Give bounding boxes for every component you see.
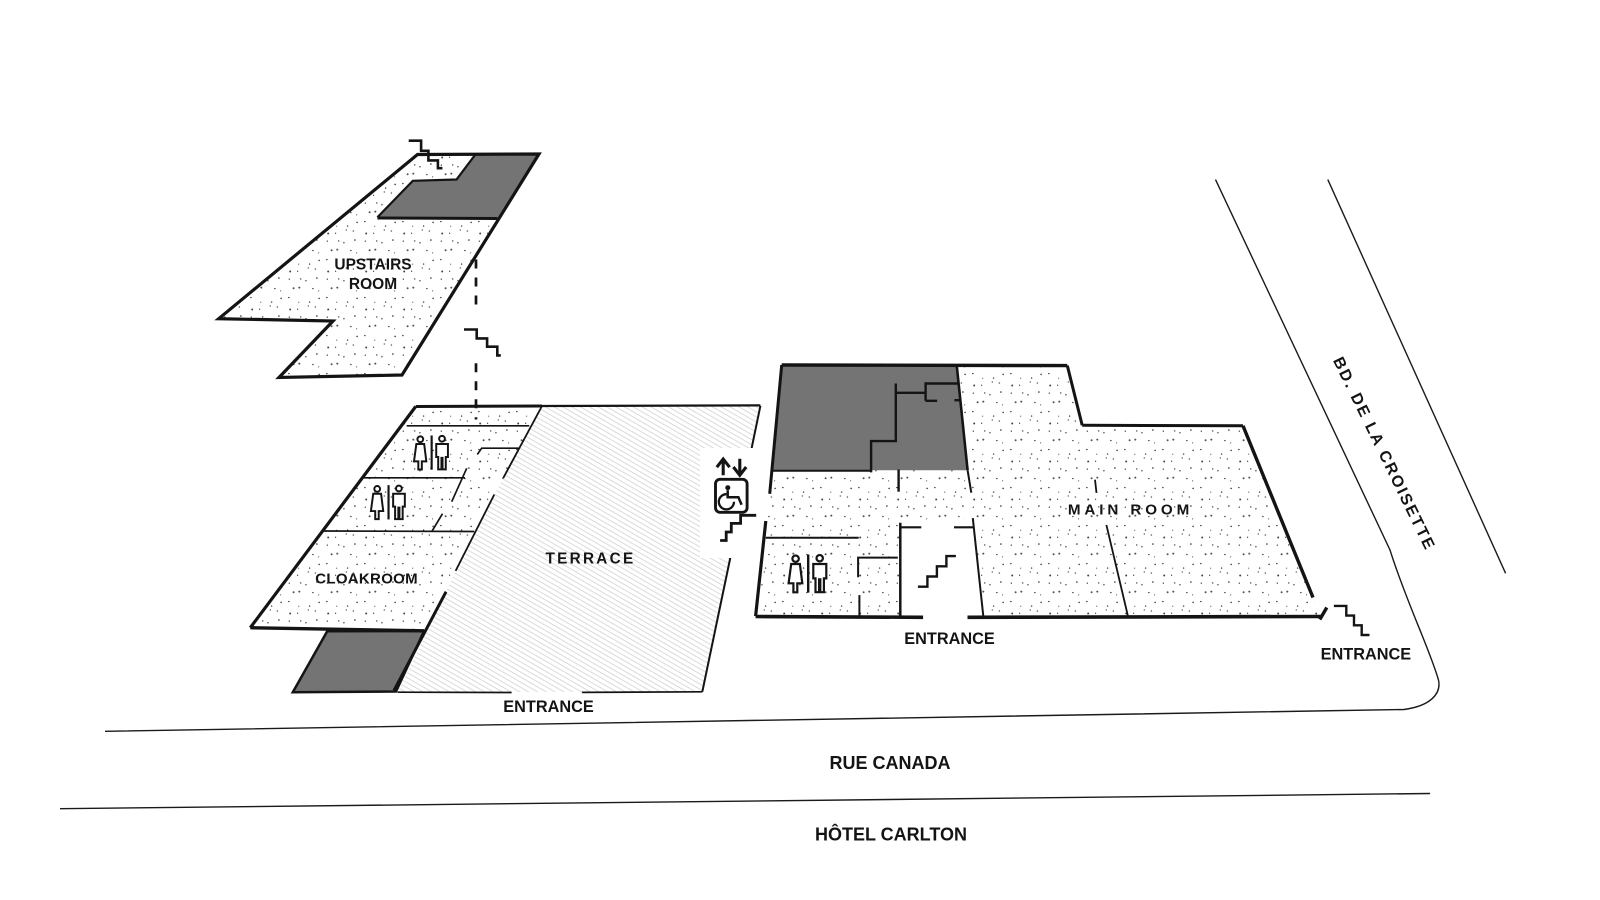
svg-text:ENTRANCE: ENTRANCE xyxy=(503,698,594,716)
svg-text:CLOAKROOM: CLOAKROOM xyxy=(315,571,418,588)
svg-text:HÔTEL CARLTON: HÔTEL CARLTON xyxy=(815,823,967,844)
svg-text:MAIN ROOM: MAIN ROOM xyxy=(1068,502,1193,519)
svg-text:UPSTAIRS: UPSTAIRS xyxy=(334,256,411,273)
svg-text:ENTRANCE: ENTRANCE xyxy=(1321,646,1412,664)
svg-text:ROOM: ROOM xyxy=(349,276,397,293)
svg-text:RUE CANADA: RUE CANADA xyxy=(830,753,951,773)
svg-text:TERRACE: TERRACE xyxy=(545,551,635,568)
svg-text:ENTRANCE: ENTRANCE xyxy=(904,630,995,648)
